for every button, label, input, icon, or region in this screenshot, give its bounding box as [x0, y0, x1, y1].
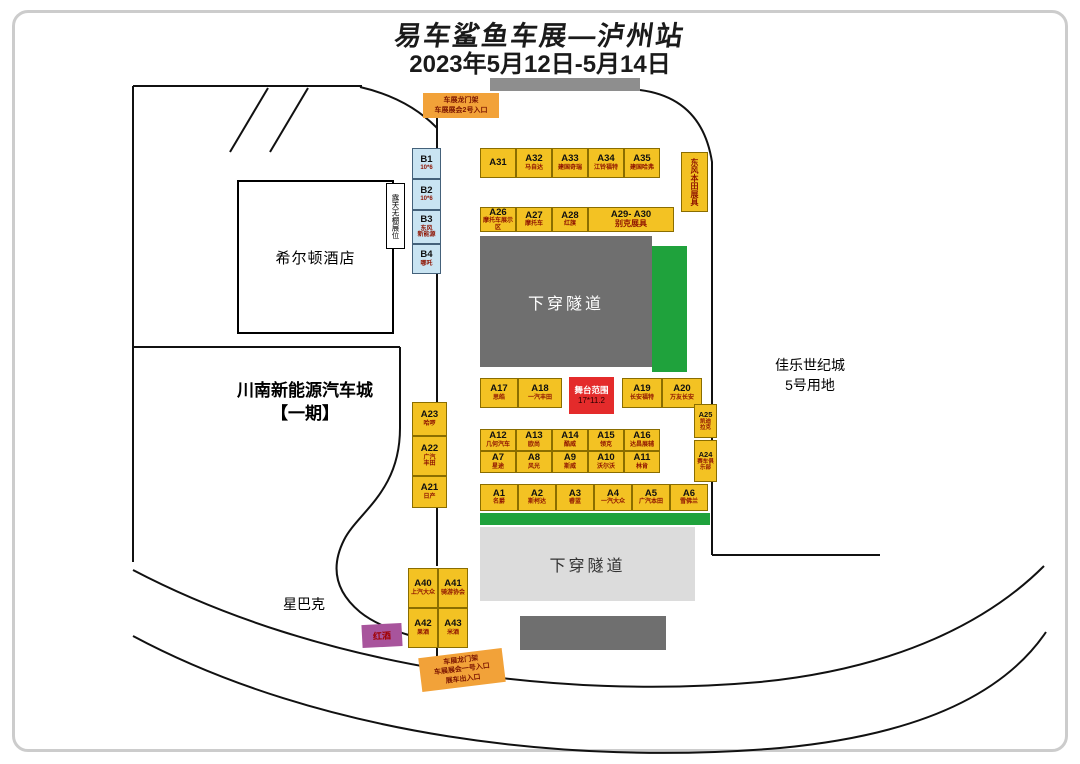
booth-a27: A27摩托车 — [516, 207, 552, 232]
booth-exhibitor: 沃尔沃 — [597, 464, 615, 471]
booth-a32: A32马自达 — [516, 148, 552, 178]
booth-id: A2 — [531, 489, 543, 499]
lower-road-block — [520, 616, 666, 650]
booth-id: A42 — [414, 619, 431, 629]
booth-a18: A18一汽丰田 — [518, 378, 562, 408]
booth-a21: A21日产 — [412, 476, 447, 508]
booth-id: A26 — [489, 208, 506, 218]
booth-dongfeng-honda-display: 东风本田展具 — [681, 152, 708, 212]
booth-a7: A7星途 — [480, 451, 516, 473]
booth-id: A22 — [421, 444, 438, 454]
booth-exhibitor: 广汽本田 — [639, 499, 663, 506]
booth-a25: A25凯迪 拉克 — [694, 404, 717, 438]
booth-id: A41 — [444, 579, 461, 589]
booth-a40: A40上汽大众 — [408, 568, 438, 608]
booth-exhibitor: 哈啰 — [423, 421, 435, 428]
booth-a9: A9斯威 — [552, 451, 588, 473]
booth-id: A32 — [525, 154, 542, 164]
booth-id: A24 — [699, 451, 713, 459]
booth-exhibitor: 摩托车 — [525, 221, 543, 228]
booth-a29-a30: A29- A30别克展具 — [588, 207, 674, 232]
booth-exhibitor: 日产 — [423, 494, 435, 501]
booth-exhibitor: 建国奇瑞 — [558, 165, 582, 172]
booth-a26: A26摩托车展示区 — [480, 207, 516, 232]
stage-area: 舞台范围 17*11.2 — [569, 377, 614, 414]
booth-id: A10 — [597, 453, 614, 463]
booth-exhibitor: 星途 — [492, 464, 504, 471]
booth-id: A3 — [569, 489, 581, 499]
booth-a2: A2斯柯达 — [518, 484, 556, 511]
booth-a42: A42果酒 — [408, 608, 438, 648]
booth-id: B2 — [420, 186, 432, 196]
booth-exhibitor: 果酒 — [417, 630, 429, 637]
booth-b1: B110*6 — [412, 148, 441, 179]
entrance-gate-2: 车展龙门架 车展展会2号入口 — [423, 93, 499, 118]
booth-b3: B3东风 新能源 — [412, 210, 441, 244]
booth-id: A16 — [633, 431, 650, 441]
booth-exhibitor: 酷威 — [564, 442, 576, 449]
booth-a16: A16达昌展辅 — [624, 429, 660, 451]
booth-exhibitor: 骑游协会 — [441, 590, 465, 597]
stage-label: 舞台范围 — [574, 385, 608, 396]
booth-a19: A19长安福特 — [622, 378, 662, 408]
booth-exhibitor: 斯柯达 — [528, 499, 546, 506]
booth-exhibitor: 江铃福特 — [594, 165, 618, 172]
booth-exhibitor: 领克 — [600, 442, 612, 449]
booth-a35: A35建国哈弗 — [624, 148, 660, 178]
booth-id: A11 — [634, 453, 651, 463]
booth-id: A20 — [673, 384, 690, 394]
booth-id: A19 — [633, 384, 650, 394]
booth-exhibitor: 10*6 — [420, 165, 432, 172]
ramp-line-2 — [270, 88, 308, 152]
booth-a34: A34江铃福特 — [588, 148, 624, 178]
booth-exhibitor: 名爵 — [493, 499, 505, 506]
booth-a43: A43米酒 — [438, 608, 468, 648]
booth-exhibitor: 别克展具 — [615, 220, 647, 229]
booth-id: A4 — [607, 489, 619, 499]
booth-exhibitor: 一汽大众 — [601, 499, 625, 506]
booth-a28: A28红旗 — [552, 207, 588, 232]
booth-exhibitor: 东风 新能源 — [417, 226, 435, 239]
booth-a33: A33建国奇瑞 — [552, 148, 588, 178]
booth-exhibitor: 摩托车展示区 — [481, 218, 515, 231]
booth-a14: A14酷威 — [552, 429, 588, 451]
stage-size: 17*11.2 — [578, 396, 605, 406]
booth-a24: A24赛车俱 乐部 — [694, 440, 717, 482]
booth-id: A17 — [490, 384, 507, 394]
booth-id: A6 — [683, 489, 695, 499]
booth-id: A43 — [444, 619, 461, 629]
booth-exhibitor: 哪吒 — [420, 261, 432, 268]
booth-id: A31 — [489, 158, 506, 168]
booth-exhibitor: 睿蓝 — [569, 499, 581, 506]
car-city-label: 川南新能源汽车城 【一期】 — [190, 380, 420, 426]
booth-id: A28 — [561, 211, 578, 221]
booth-id: A18 — [531, 384, 548, 394]
booth-a5: A5广汽本田 — [632, 484, 670, 511]
green-strip-horizontal — [480, 513, 710, 525]
booth-id: A8 — [528, 453, 540, 463]
booth-id: B3 — [420, 215, 432, 225]
wine-booth: 红酒 — [361, 623, 402, 648]
booth-id: A15 — [597, 431, 614, 441]
booth-exhibitor: 一汽丰田 — [528, 395, 552, 402]
tunnel-lower-block: 下穿隧道 — [480, 527, 695, 601]
booth-id: A27 — [525, 211, 542, 221]
booth-a1: A1名爵 — [480, 484, 518, 511]
green-strip-vertical — [652, 246, 687, 372]
booth-exhibitor: 上汽大众 — [411, 590, 435, 597]
booth-id: A5 — [645, 489, 657, 499]
booth-b2: B210*6 — [412, 179, 441, 210]
booth-id: A23 — [421, 410, 438, 420]
booth-exhibitor: 达昌展辅 — [630, 442, 654, 449]
booth-id: A12 — [489, 431, 506, 441]
booth-id: A40 — [414, 579, 431, 589]
open-air-booth-label: 露天无棚展位 — [386, 183, 405, 249]
event-map-page: 易车鲨鱼车展—泸州站 2023年5月12日-5月14日 希尔顿酒店 川南新能源汽… — [0, 0, 1080, 764]
booth-exhibitor: 欧尚 — [528, 442, 540, 449]
booth-a15: A15领克 — [588, 429, 624, 451]
booth-exhibitor: 长安福特 — [630, 395, 654, 402]
booth-id: A33 — [561, 154, 578, 164]
booth-id: A9 — [564, 453, 576, 463]
booth-id: A13 — [525, 431, 542, 441]
booth-id: A21 — [421, 483, 438, 493]
page-date: 2023年5月12日-5月14日 — [0, 44, 1080, 79]
top-road-block — [490, 78, 640, 91]
booth-exhibitor: 米酒 — [447, 630, 459, 637]
booth-a11: A11林肯 — [624, 451, 660, 473]
booth-a6: A6雪佛兰 — [670, 484, 708, 511]
ramp-line-1 — [230, 88, 268, 152]
booth-exhibitor: 几何汽车 — [486, 442, 510, 449]
booth-id: A34 — [597, 154, 614, 164]
tunnel-upper-block: 下穿隧道 — [480, 236, 652, 367]
booth-a10: A10沃尔沃 — [588, 451, 624, 473]
booth-a22: A22广汽 丰田 — [412, 436, 447, 476]
booth-exhibitor: 凯迪 拉克 — [700, 419, 711, 431]
booth-exhibitor: 万友长安 — [670, 395, 694, 402]
booth-a31: A31 — [480, 148, 516, 178]
booth-exhibitor: 红旗 — [564, 221, 576, 228]
booth-a8: A8风光 — [516, 451, 552, 473]
booth-id: A7 — [492, 453, 504, 463]
booth-exhibitor: 思皓 — [493, 395, 505, 402]
booth-a3: A3睿蓝 — [556, 484, 594, 511]
booth-b4: B4哪吒 — [412, 244, 441, 274]
booth-exhibitor: 赛车俱 乐部 — [697, 459, 714, 471]
booth-id: B4 — [420, 250, 432, 260]
booth-a12: A12几何汽车 — [480, 429, 516, 451]
booth-a13: A13欧尚 — [516, 429, 552, 451]
booth-id: A1 — [493, 489, 505, 499]
booth-exhibitor: 雪佛兰 — [680, 499, 698, 506]
booth-id: A25 — [699, 411, 713, 419]
booth-exhibitor: 风光 — [528, 464, 540, 471]
booth-exhibitor: 马自达 — [525, 165, 543, 172]
booth-a17: A17思皓 — [480, 378, 518, 408]
booth-id: A14 — [561, 431, 578, 441]
booth-id: A35 — [633, 154, 650, 164]
hilton-hotel-block: 希尔顿酒店 — [237, 180, 394, 334]
booth-id: B1 — [420, 155, 432, 165]
booth-exhibitor: 10*6 — [420, 196, 432, 203]
booth-exhibitor: 斯威 — [564, 464, 576, 471]
booth-exhibitor: 广汽 丰田 — [423, 455, 435, 468]
booth-a41: A41骑游协会 — [438, 568, 468, 608]
starbucks-label: 星巴克 — [283, 594, 325, 614]
booth-a4: A4一汽大众 — [594, 484, 632, 511]
jiale-century-city-label: 佳乐世纪城 5号用地 — [745, 356, 875, 395]
booth-exhibitor: 建国哈弗 — [630, 165, 654, 172]
booth-exhibitor: 林肯 — [636, 464, 648, 471]
